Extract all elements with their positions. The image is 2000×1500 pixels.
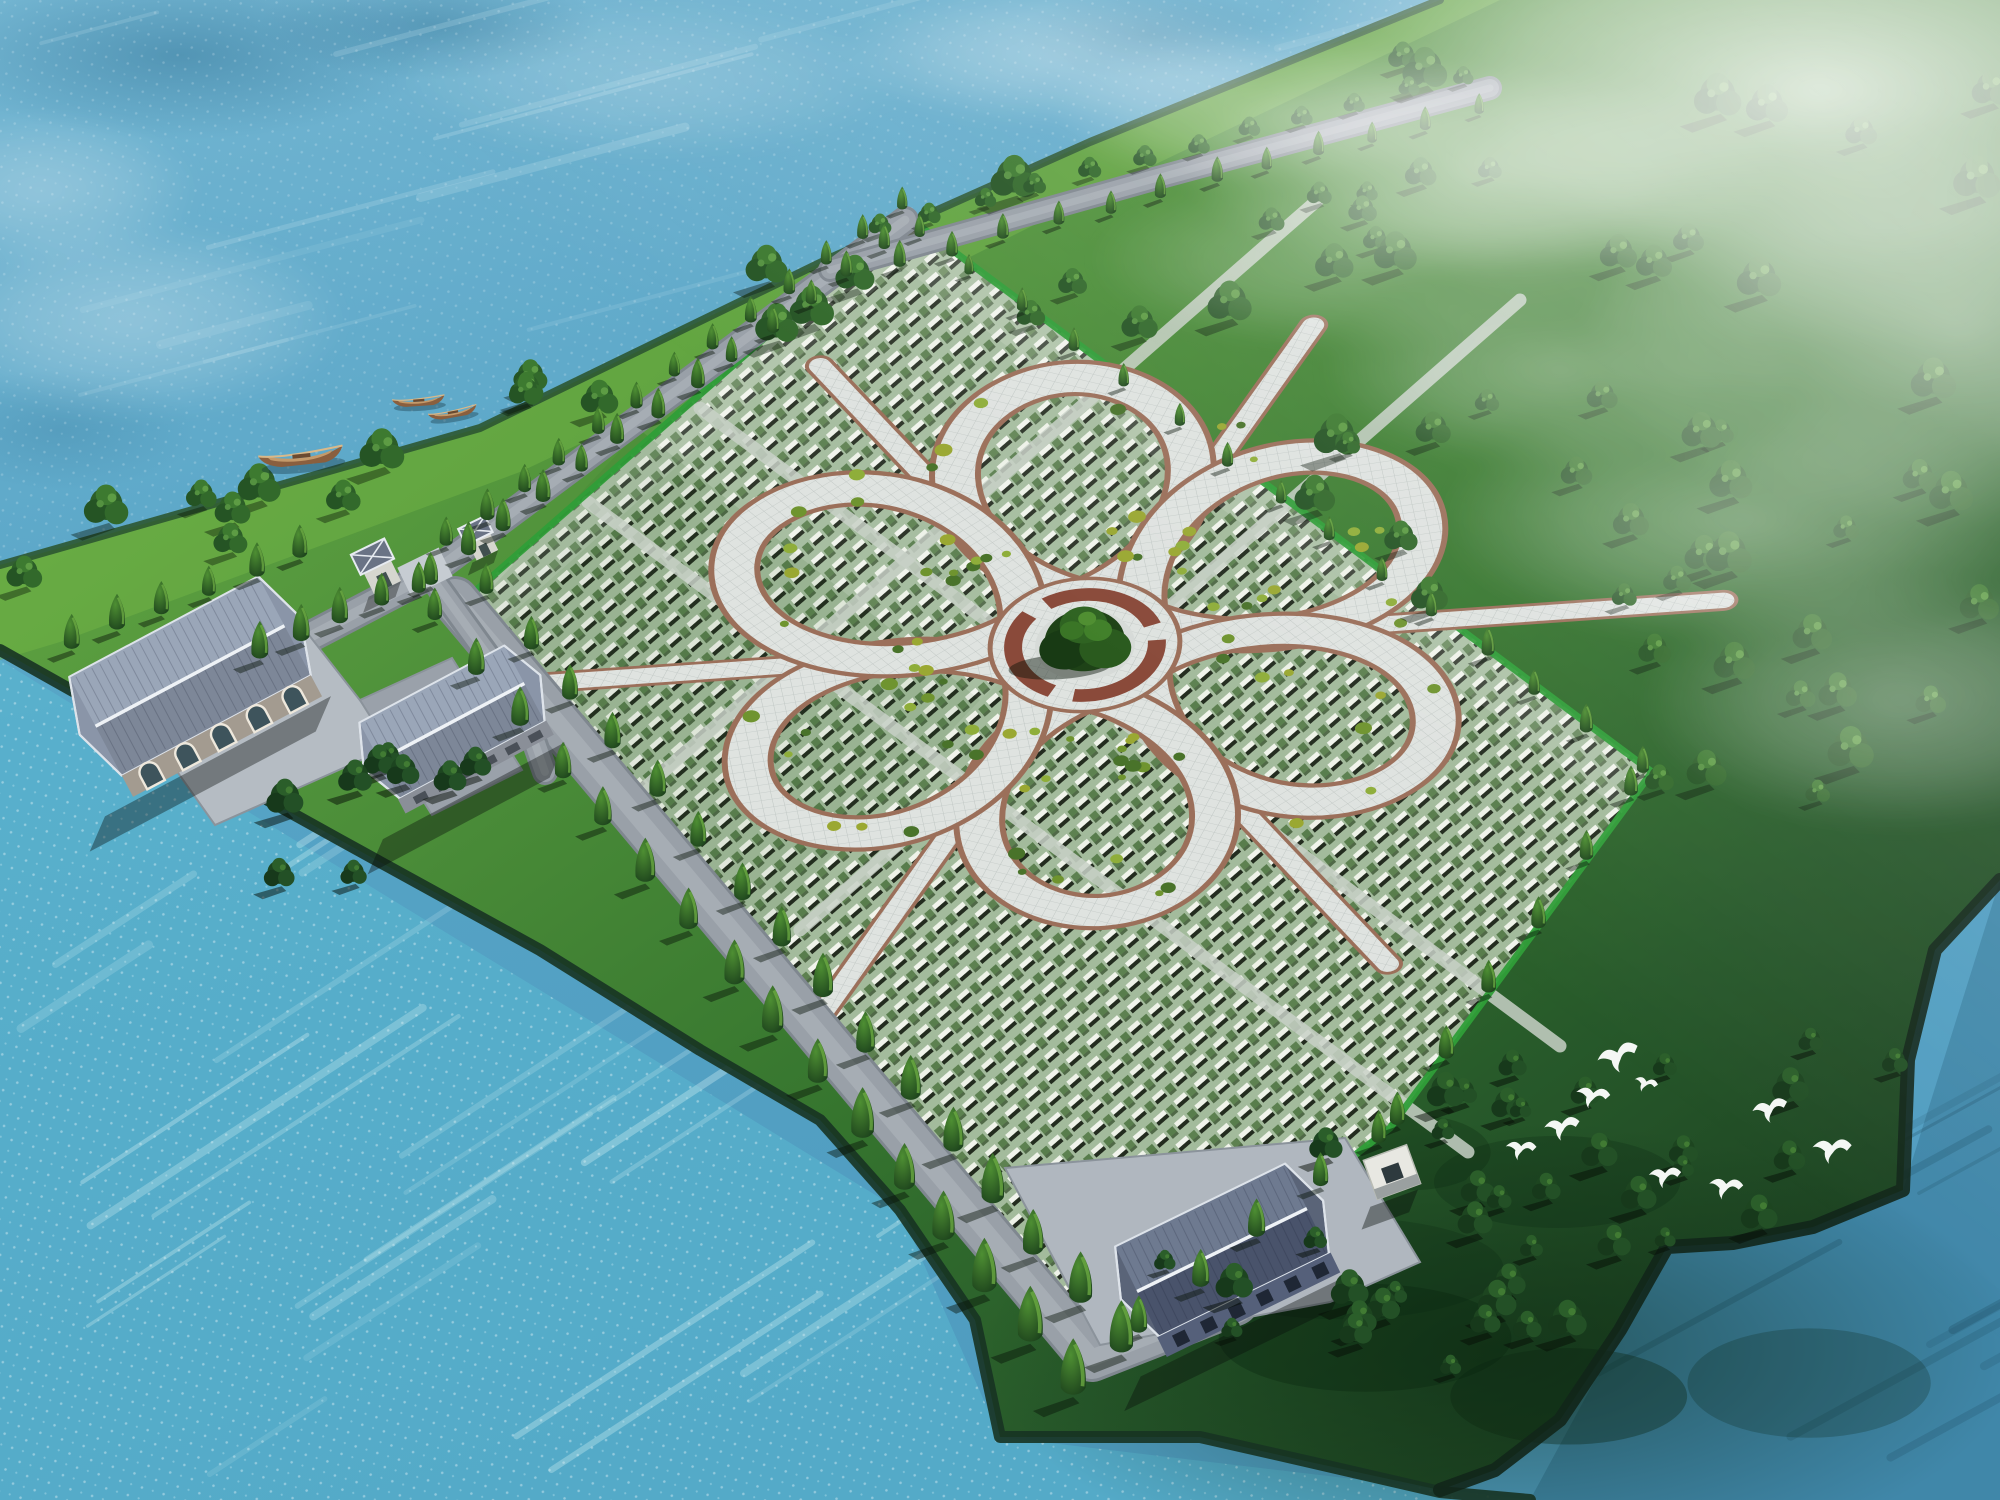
aerial-rendering-scene — [0, 0, 2000, 1500]
light-sweep — [0, 0, 2000, 1500]
memorial-park-rendering — [0, 0, 2000, 1500]
